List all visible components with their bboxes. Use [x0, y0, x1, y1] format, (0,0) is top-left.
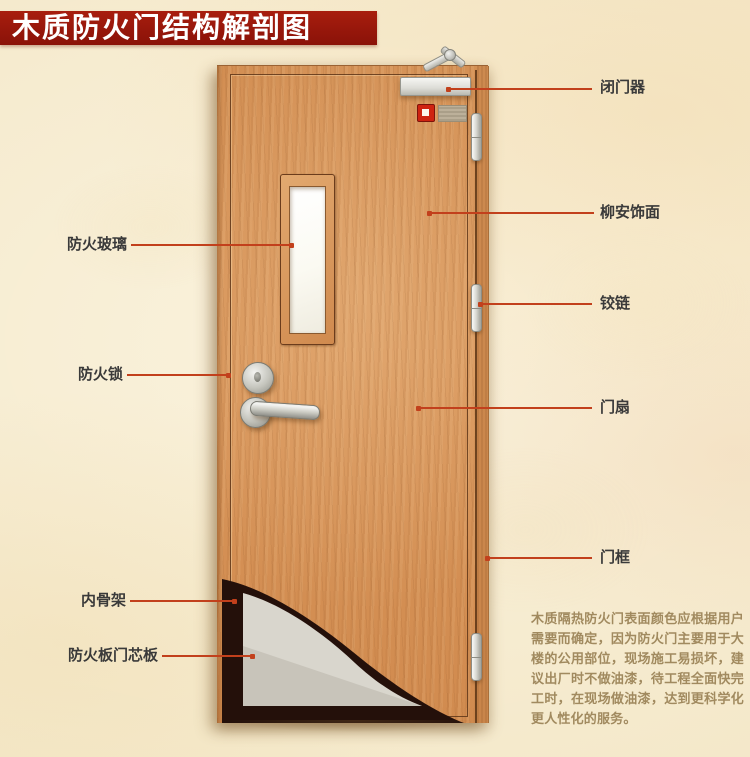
- door-illustration: [217, 65, 488, 723]
- label-door-closer: 闭门器: [600, 79, 645, 96]
- door-closer-joint-icon: [444, 49, 456, 61]
- label-core-board: 防火板门芯板: [68, 647, 158, 664]
- leader-dot: [232, 599, 237, 604]
- leader-hinge: [479, 303, 592, 305]
- leader-dot: [226, 373, 231, 378]
- leader-dot: [485, 556, 490, 561]
- label-fire-lock: 防火锁: [78, 366, 123, 383]
- label-door-leaf: 门扇: [600, 399, 630, 416]
- nameplate: [438, 105, 467, 122]
- fire-safety-badge-icon: [417, 104, 435, 122]
- diagram-background: 木质防火门结构解剖图: [0, 0, 750, 757]
- label-door-frame: 门框: [600, 549, 630, 566]
- leader-dot: [427, 211, 432, 216]
- hinge-bottom: [471, 633, 482, 681]
- leader-inner-skeleton: [130, 600, 236, 602]
- door-frame-strip: [477, 66, 489, 723]
- leader-door-closer: [447, 88, 592, 90]
- leader-dot: [250, 654, 255, 659]
- leader-fire-lock: [127, 374, 230, 376]
- label-hinge: 铰链: [600, 295, 630, 312]
- fire-glass: [289, 186, 326, 334]
- leader-door-frame: [486, 557, 592, 559]
- label-veneer: 柳安饰面: [600, 204, 660, 221]
- fire-lock-cylinder: [242, 362, 274, 394]
- leader-door-leaf: [417, 407, 592, 409]
- hinge-top: [471, 113, 482, 161]
- vision-window-frame: [280, 174, 335, 345]
- leader-dot: [478, 302, 483, 307]
- page-title: 木质防火门结构解剖图: [0, 11, 377, 45]
- hinge-middle: [471, 284, 482, 332]
- leader-veneer: [428, 212, 594, 214]
- description-note: 木质隔热防火门表面颜色应根据用户需要而确定，因为防火门主要用于大楼的公用部位，现…: [531, 609, 744, 729]
- label-fire-glass: 防火玻璃: [67, 236, 127, 253]
- door-closer: [400, 77, 471, 96]
- leader-dot: [289, 243, 294, 248]
- leader-fire-glass: [131, 244, 293, 246]
- door-cutaway: [217, 66, 488, 723]
- leader-dot: [446, 87, 451, 92]
- leader-core-board: [162, 655, 254, 657]
- label-inner-skeleton: 内骨架: [81, 592, 126, 609]
- door-shadow: [210, 720, 498, 736]
- leader-dot: [416, 406, 421, 411]
